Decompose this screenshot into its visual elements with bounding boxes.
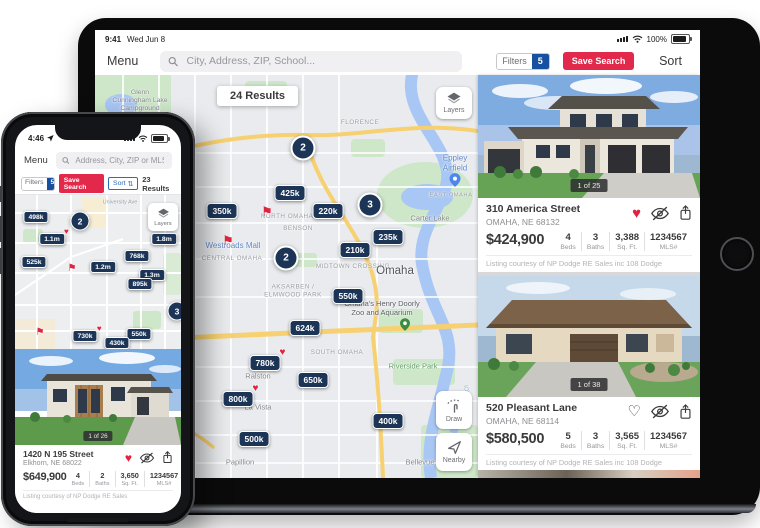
- map-price-pin[interactable]: 895k: [127, 278, 152, 290]
- stat-value: 3: [587, 431, 604, 442]
- menu-button[interactable]: Menu: [24, 155, 48, 166]
- layers-icon: [446, 92, 462, 105]
- map-label: BENSON: [283, 225, 313, 233]
- favorite-heart-icon: ♥: [280, 348, 286, 358]
- stat-value: 3,650: [121, 471, 139, 480]
- stat-label: Beds: [560, 244, 576, 251]
- listing-price: $424,900: [486, 232, 544, 248]
- stat-value: 3,388: [615, 232, 639, 243]
- stat-value: 5: [560, 431, 576, 442]
- listing-card[interactable]: 1420 N 195 Street Elkhorn, NE 68022 ♥ $6…: [15, 445, 181, 513]
- map-label: EAST OMAHA: [430, 193, 473, 200]
- location-arrow-icon: [47, 135, 54, 142]
- map-price-pin[interactable]: 550k: [126, 328, 151, 340]
- flag-pin-icon[interactable]: ⚑: [261, 205, 273, 218]
- iphone-toolbar: Menu: [15, 147, 181, 173]
- sort-button[interactable]: Sort ⇅: [108, 177, 138, 190]
- layers-icon: [157, 208, 170, 219]
- iphone-filter-row: Filters 5 Save Search Sort ⇅ 23 Results: [15, 173, 181, 195]
- zoo-map-pin: [400, 318, 410, 331]
- favorite-heart-icon: ♥: [64, 228, 69, 236]
- iphone-device-frame: 4:46 Menu Filters 5: [1, 112, 195, 526]
- next-card-photo-sliver: [478, 470, 700, 478]
- stat-value: 4: [71, 471, 84, 480]
- iphone-home-indicator[interactable]: [67, 518, 129, 522]
- map-label-omaha: Omaha: [376, 265, 414, 279]
- search-field[interactable]: [160, 51, 462, 72]
- iphone-status-time: 4:46: [28, 134, 44, 143]
- share-button[interactable]: [162, 451, 173, 464]
- flag-pin-icon[interactable]: ⚑: [36, 328, 45, 338]
- battery-percent: 100%: [647, 35, 667, 44]
- layers-button[interactable]: Layers: [436, 87, 472, 119]
- listing-card[interactable]: 520 Pleasant Lane OMAHA, NE 68114 ♡ $580…: [478, 397, 700, 471]
- draw-label: Draw: [446, 416, 462, 423]
- hide-listing-button[interactable]: [650, 404, 670, 419]
- stat-label: Baths: [587, 244, 604, 251]
- map-label: Eppley Airfield: [434, 153, 476, 172]
- favorite-heart-icon: ♥: [253, 384, 259, 394]
- map-label: FLORENCE: [341, 119, 379, 127]
- share-button[interactable]: [679, 404, 692, 420]
- listing-price: $580,500: [486, 431, 544, 447]
- layers-label: Layers: [154, 221, 171, 227]
- listing-price: $649,900: [23, 471, 66, 483]
- listing-courtesy: Listing courtesy of NP Dodge RE Sales in…: [486, 454, 692, 467]
- map-price-pin[interactable]: 498k: [23, 211, 48, 223]
- ipad-toolbar: Menu Filters 5 Save Search Sort: [95, 46, 700, 77]
- map-price-pin[interactable]: 210k: [340, 242, 371, 258]
- search-icon: [62, 156, 70, 165]
- map-price-pin[interactable]: 350k: [207, 203, 238, 219]
- sort-arrows-icon: ⇅: [128, 180, 134, 188]
- wifi-icon: [138, 135, 148, 142]
- map-cluster[interactable]: 2: [71, 212, 90, 231]
- ipad-home-button[interactable]: [720, 237, 754, 271]
- stat-value: 3: [587, 232, 604, 243]
- map-street-label: University Ave: [103, 200, 138, 207]
- listing-courtesy: Listing courtesy of NP Dodge RE Sales: [23, 490, 173, 500]
- map-price-pin[interactable]: 425k: [275, 185, 306, 201]
- save-search-button[interactable]: Save Search: [59, 174, 104, 193]
- ipad-status-time: 9:41: [105, 35, 121, 44]
- map-cluster[interactable]: 2: [274, 246, 299, 271]
- filters-count-badge: 5: [47, 178, 55, 190]
- map-label: Papillion: [226, 458, 254, 467]
- listing-photo[interactable]: 1 of 38: [478, 276, 700, 397]
- map-price-pin-favorited[interactable]: 800k♥: [223, 391, 254, 407]
- iphone-volume-down-button: [0, 248, 2, 274]
- stat-label: MLS#: [650, 244, 687, 251]
- stat-label: MLS#: [150, 481, 178, 487]
- flag-pin-icon[interactable]: ⚑: [68, 264, 77, 274]
- map-label: Bellevue: [406, 458, 435, 467]
- save-search-button[interactable]: Save Search: [563, 52, 635, 70]
- listing-card[interactable]: 310 America Street OMAHA, NE 68132 ♥ $42…: [478, 198, 700, 272]
- stat-label: Baths: [587, 443, 604, 450]
- listing-results-column: 1 of 25 310 America Street OMAHA, NE 681…: [478, 75, 700, 478]
- draw-button[interactable]: Draw: [436, 391, 472, 429]
- listing-courtesy: Listing courtesy of NP Dodge RE Sales in…: [486, 255, 692, 268]
- photo-counter-badge: 1 of 26: [83, 431, 112, 441]
- layers-label: Layers: [443, 107, 464, 114]
- draw-icon: [446, 397, 463, 414]
- filters-label: Filters: [497, 54, 532, 69]
- search-icon: [168, 56, 178, 67]
- map-price-pin[interactable]: 550k: [333, 288, 364, 304]
- ipad-status-bar: 9:41 Wed Jun 8 100%: [95, 30, 700, 46]
- map-price-pin[interactable]: 624k: [290, 320, 321, 336]
- map-price-pin[interactable]: 525k: [21, 256, 46, 268]
- favorite-heart-icon: ♥: [97, 325, 102, 333]
- map-price-pin[interactable]: 500k: [239, 431, 270, 447]
- map-price-pin-favorited[interactable]: 1.1m♥: [39, 233, 65, 245]
- favorite-heart-button[interactable]: ♥: [125, 452, 132, 464]
- share-button[interactable]: [679, 205, 692, 221]
- stat-label: Sq. Ft.: [615, 443, 639, 450]
- iphone-notch: [55, 125, 141, 140]
- favorite-heart-button[interactable]: ♡: [628, 404, 641, 419]
- menu-button[interactable]: Menu: [107, 54, 138, 68]
- device-mockup-stage: 9:41 Wed Jun 8 100% Menu Filters: [0, 0, 760, 528]
- search-input[interactable]: [185, 54, 455, 68]
- nearby-icon: [447, 440, 462, 455]
- stat-value: 1234567: [650, 431, 687, 442]
- filters-button[interactable]: Filters 5: [21, 177, 55, 191]
- stat-label: Sq. Ft.: [121, 481, 139, 487]
- map-label: SOUTH OMAHA: [311, 349, 363, 357]
- filters-label: Filters: [22, 178, 47, 190]
- map-label: Riverside Park: [389, 362, 438, 371]
- listing-photo[interactable]: 1 of 25: [478, 75, 700, 198]
- stat-value: 1234567: [650, 232, 687, 243]
- stat-label: Beds: [560, 443, 576, 450]
- stat-label: Beds: [71, 481, 84, 487]
- stat-value: 1234567: [150, 471, 178, 480]
- filters-count-badge: 5: [532, 54, 549, 69]
- sort-button[interactable]: Sort: [659, 54, 688, 68]
- wifi-icon: [632, 35, 643, 43]
- hide-listing-button[interactable]: [650, 206, 670, 221]
- stat-value: 2: [95, 471, 109, 480]
- map-cluster[interactable]: 3: [168, 302, 182, 321]
- battery-icon: [151, 134, 168, 143]
- map-price-pin[interactable]: 768k: [124, 250, 149, 262]
- map-label: CENTRAL OMAHA: [202, 255, 263, 263]
- layers-button[interactable]: Layers: [148, 203, 178, 231]
- flag-pin-icon[interactable]: ⚑: [222, 234, 234, 247]
- iphone-volume-up-button: [0, 216, 2, 242]
- map-price-pin[interactable]: 430k: [104, 337, 129, 349]
- favorite-heart-button[interactable]: ♥: [632, 206, 641, 221]
- map-label: Glenn Cunningham Lake Campground: [111, 89, 169, 113]
- search-field[interactable]: [56, 152, 172, 169]
- results-count-badge: 24 Results: [217, 86, 298, 106]
- listing-photo[interactable]: 1 of 26: [15, 349, 181, 445]
- results-count: 23 Results: [142, 175, 175, 193]
- map-price-pin[interactable]: 650k: [298, 372, 329, 388]
- photo-counter-badge: 1 of 25: [571, 179, 608, 192]
- filters-button[interactable]: Filters 5: [496, 53, 550, 70]
- iphone-screen: 4:46 Menu Filters 5: [15, 125, 181, 513]
- iphone-map[interactable]: University Ave Layers 2 3 ⚑ ⚑ 498k 1.1m♥…: [15, 195, 181, 349]
- map-cluster[interactable]: 2: [291, 136, 316, 161]
- map-label: Carter Lake: [410, 214, 449, 223]
- hide-listing-button[interactable]: [139, 452, 155, 464]
- cellular-signal-icon: [617, 36, 628, 42]
- map-price-pin[interactable]: 235k: [373, 229, 404, 245]
- photo-counter-badge: 1 of 38: [571, 378, 608, 391]
- search-input[interactable]: [73, 155, 166, 166]
- sort-label: Sort: [113, 180, 125, 187]
- nearby-button[interactable]: Nearby: [436, 433, 472, 471]
- stat-value: 3,565: [615, 431, 639, 442]
- map-price-pin[interactable]: 400k: [373, 413, 404, 429]
- map-price-pin[interactable]: 1.8m: [151, 233, 177, 245]
- stat-value: 4: [560, 232, 576, 243]
- ipad-status-date: Wed Jun 8: [127, 35, 165, 44]
- stat-label: Baths: [95, 481, 109, 487]
- map-price-pin-favorited[interactable]: 780k♥: [250, 355, 281, 371]
- airport-map-pin: [450, 173, 461, 187]
- map-cluster[interactable]: 3: [358, 193, 383, 218]
- iphone-mute-switch: [0, 186, 2, 202]
- map-price-pin[interactable]: 220k: [313, 203, 344, 219]
- battery-icon: [671, 34, 690, 44]
- map-label: Ralston: [245, 372, 270, 381]
- map-price-pin-favorited[interactable]: 730k♥: [72, 330, 97, 342]
- stat-label: Sq. Ft.: [615, 244, 639, 251]
- nearby-label: Nearby: [443, 457, 466, 464]
- map-label: AKSARBEN / ELMWOOD PARK: [262, 283, 324, 298]
- map-price-pin[interactable]: 1.2m: [90, 261, 116, 273]
- stat-label: MLS#: [650, 443, 687, 450]
